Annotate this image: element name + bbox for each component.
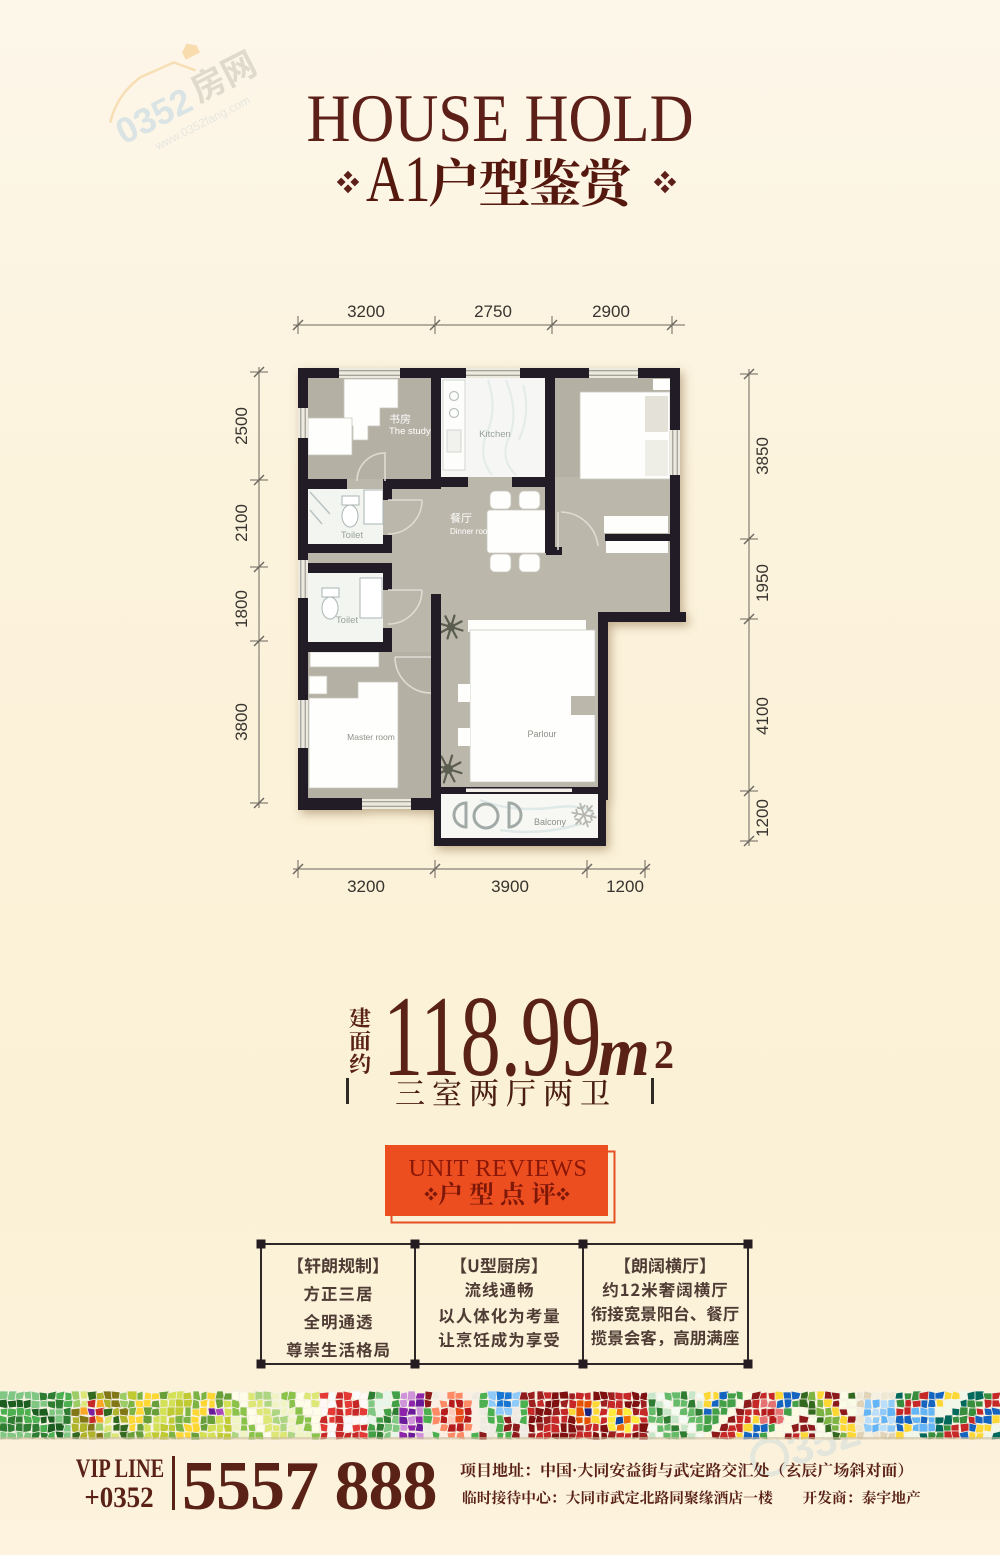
svg-text:3200: 3200 xyxy=(347,302,385,321)
svg-text:Toilet: Toilet xyxy=(341,530,364,541)
svg-text:Toilet: Toilet xyxy=(336,615,359,626)
svg-text:3800: 3800 xyxy=(232,703,251,741)
svg-text:2750: 2750 xyxy=(474,302,512,321)
svg-text:UNIT REVIEWS: UNIT REVIEWS xyxy=(408,1155,587,1182)
svg-text:1200: 1200 xyxy=(606,877,644,896)
svg-text:1950: 1950 xyxy=(753,564,772,602)
svg-text:2900: 2900 xyxy=(592,302,630,321)
svg-text:Parlour: Parlour xyxy=(527,729,556,739)
svg-text:3900: 3900 xyxy=(491,877,529,896)
svg-text:2100: 2100 xyxy=(232,504,251,542)
svg-text:3200: 3200 xyxy=(347,877,385,896)
svg-text:+0352: +0352 xyxy=(84,1482,153,1515)
svg-text:HOUSE HOLD: HOUSE HOLD xyxy=(306,81,693,156)
svg-text:1200: 1200 xyxy=(753,799,772,837)
svg-text:A1: A1 xyxy=(366,142,431,215)
svg-text:Balcony: Balcony xyxy=(534,817,567,827)
svg-text:4100: 4100 xyxy=(753,697,772,735)
svg-text:2500: 2500 xyxy=(232,407,251,445)
svg-text:Dinner room: Dinner room xyxy=(450,527,494,536)
svg-text:Second lie: Second lie xyxy=(596,437,640,448)
svg-text:VIP LINE: VIP LINE xyxy=(76,1455,164,1484)
svg-text:3850: 3850 xyxy=(753,437,772,475)
svg-text:The study: The study xyxy=(389,426,431,437)
svg-text:2: 2 xyxy=(654,1032,674,1077)
svg-text:Master room: Master room xyxy=(347,732,395,742)
svg-text:1800: 1800 xyxy=(232,590,251,628)
svg-text:m: m xyxy=(598,1012,650,1090)
svg-text:Kitchen: Kitchen xyxy=(479,429,511,440)
svg-text:5557 888: 5557 888 xyxy=(182,1448,437,1525)
